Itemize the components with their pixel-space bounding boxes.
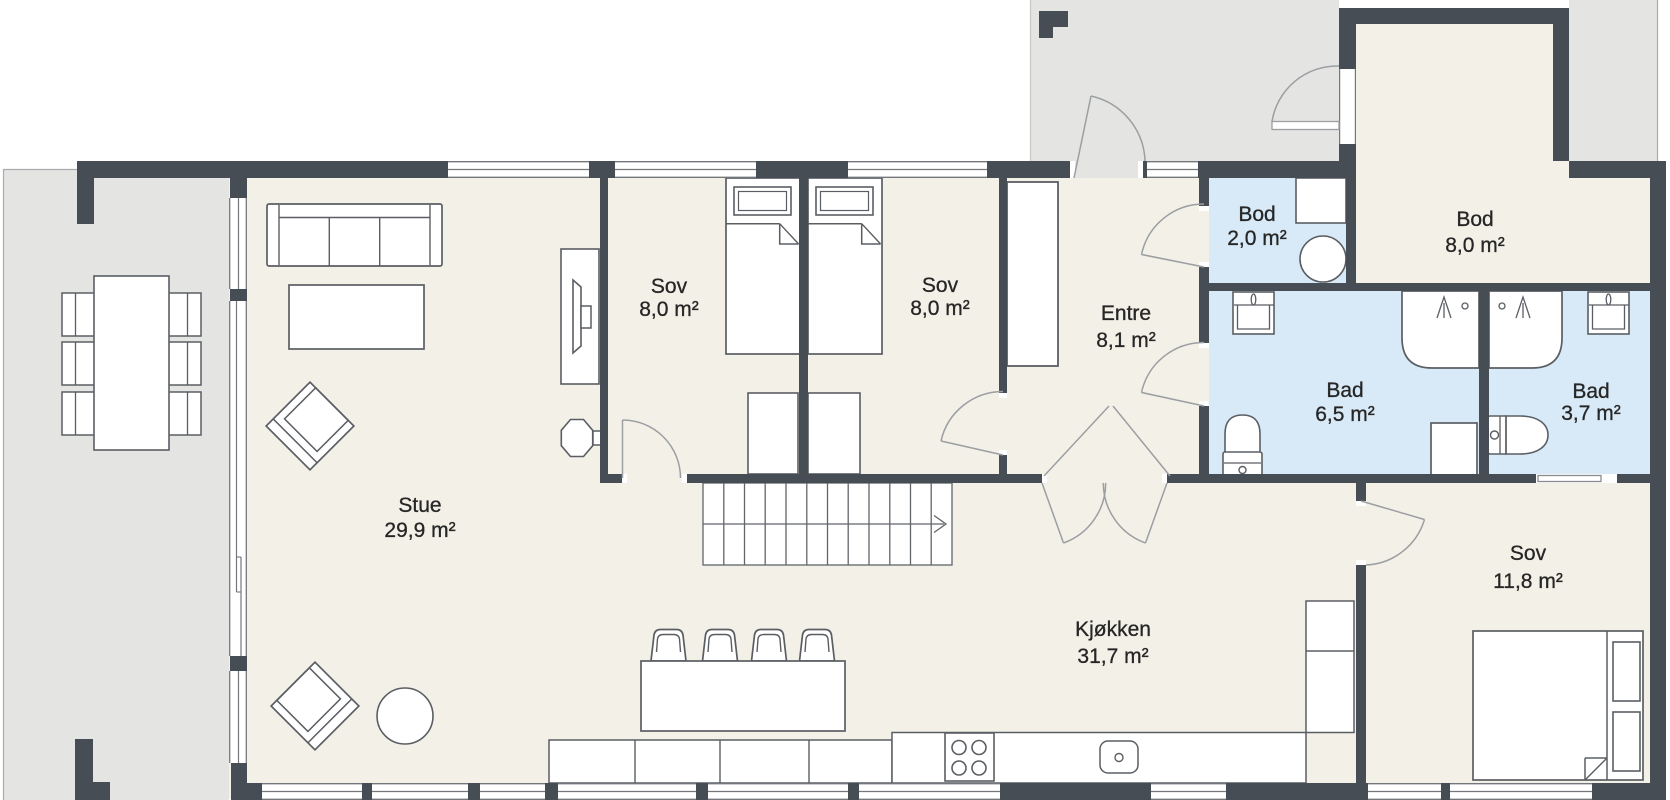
svg-text:11,8 m²: 11,8 m² — [1493, 570, 1563, 593]
svg-text:2,0 m²: 2,0 m² — [1227, 227, 1287, 250]
svg-text:Kjøkken: Kjøkken — [1075, 618, 1151, 641]
svg-text:Stue: Stue — [398, 494, 441, 517]
svg-text:Entre: Entre — [1101, 302, 1151, 325]
svg-text:31,7 m²: 31,7 m² — [1077, 645, 1148, 668]
svg-text:29,9 m²: 29,9 m² — [384, 519, 455, 542]
svg-text:Bod: Bod — [1456, 208, 1493, 231]
svg-text:6,5 m²: 6,5 m² — [1315, 403, 1375, 426]
svg-text:8,0 m²: 8,0 m² — [910, 297, 970, 320]
svg-text:3,7 m²: 3,7 m² — [1561, 402, 1621, 425]
svg-text:Bad: Bad — [1326, 379, 1363, 402]
svg-text:Bod: Bod — [1238, 203, 1275, 226]
svg-text:Sov: Sov — [922, 274, 959, 297]
svg-text:Sov: Sov — [651, 275, 688, 298]
svg-text:8,0 m²: 8,0 m² — [639, 298, 699, 321]
svg-text:8,1 m²: 8,1 m² — [1096, 329, 1156, 352]
svg-text:Bad: Bad — [1572, 380, 1609, 403]
svg-text:8,0 m²: 8,0 m² — [1445, 234, 1505, 257]
svg-text:Sov: Sov — [1510, 542, 1547, 565]
